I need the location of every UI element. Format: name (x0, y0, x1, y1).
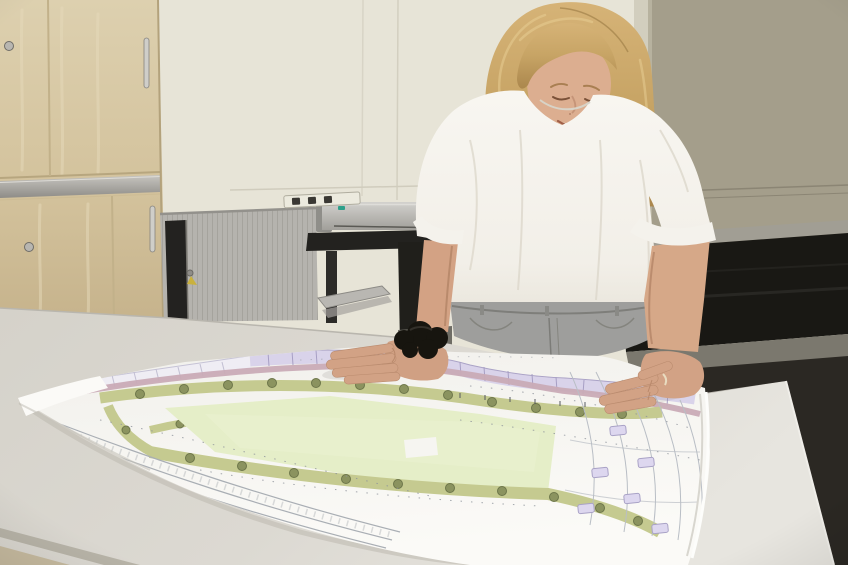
photograph: Young woman studying a large-format land… (0, 0, 848, 565)
vignette (0, 0, 848, 565)
photo-canvas (0, 0, 848, 565)
